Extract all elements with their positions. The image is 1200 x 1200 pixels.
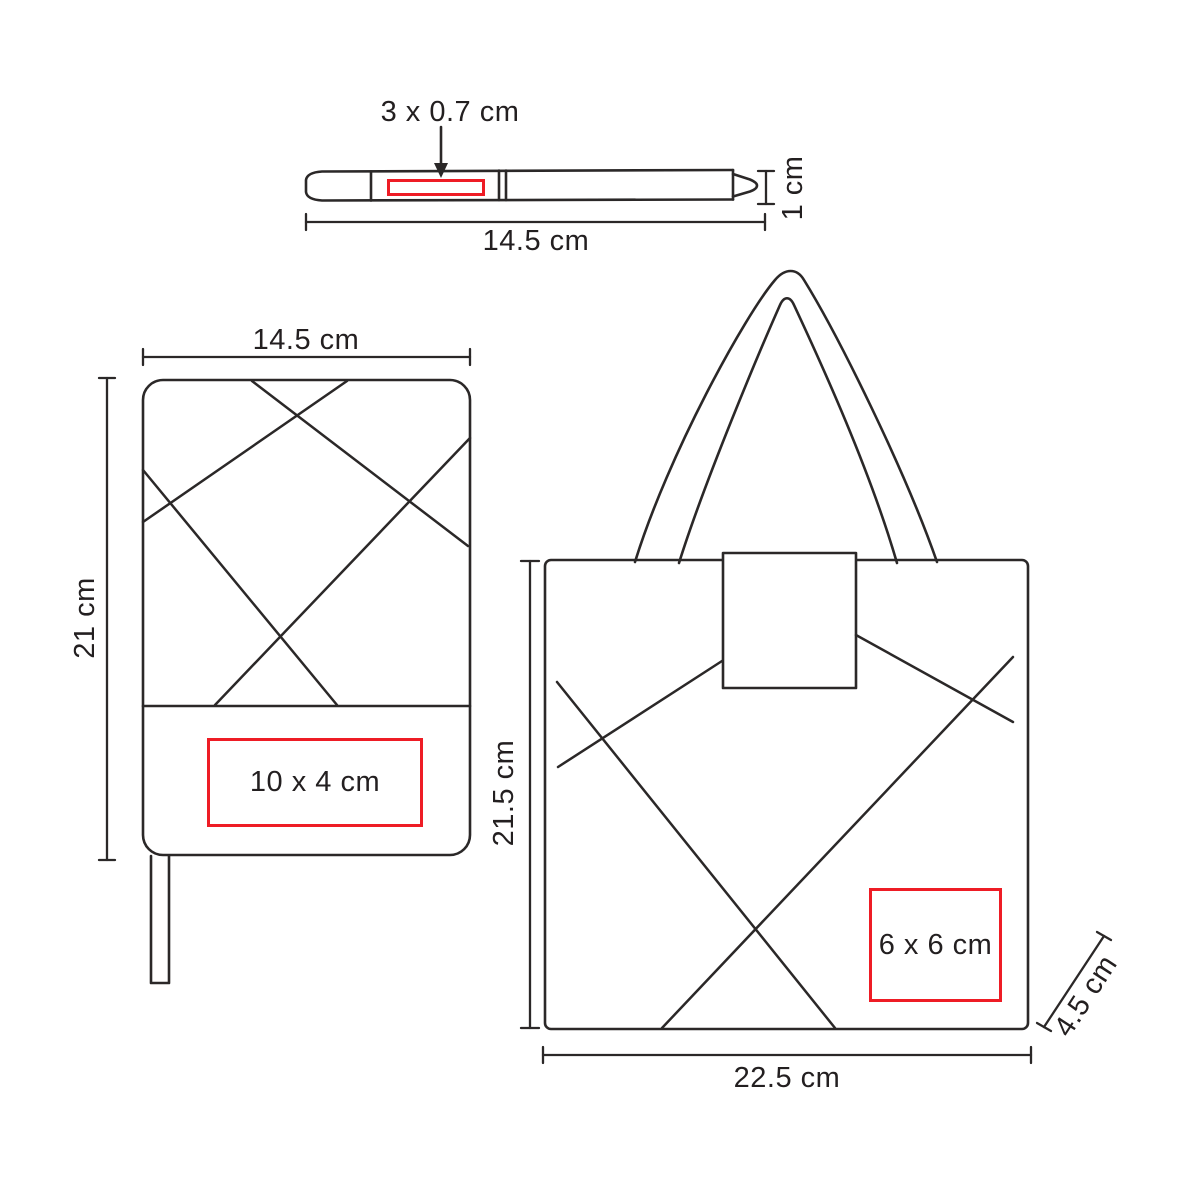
notebook-height-label: 21 cm — [70, 558, 100, 678]
notebook-print-area-label: 10 x 4 cm — [250, 766, 380, 799]
bag-print-area: 6 x 6 cm — [869, 888, 1002, 1002]
notebook-bookmark — [151, 856, 169, 983]
bag-height-dimension — [521, 561, 539, 1028]
pen-tip — [733, 174, 757, 197]
pen-diagram — [306, 127, 774, 230]
bag-print-area-label: 6 x 6 cm — [879, 929, 993, 962]
notebook-width-label: 14.5 cm — [186, 325, 426, 355]
notebook-pattern — [143, 381, 470, 705]
notebook-diagram — [99, 349, 470, 983]
bag-handle-inner — [679, 298, 897, 563]
line-art — [0, 0, 1200, 1200]
bag-height-label: 21.5 cm — [489, 733, 519, 853]
pen-height-dimension — [758, 171, 774, 204]
bag-width-dimension — [543, 1047, 1031, 1063]
bag-width-label: 22.5 cm — [667, 1063, 907, 1093]
bag-handle-outer — [635, 271, 937, 562]
pen-length-label: 14.5 cm — [416, 226, 656, 256]
pen-height-label: 1 cm — [778, 128, 808, 248]
notebook-height-dimension — [99, 378, 115, 860]
pen-print-area — [387, 179, 485, 196]
pen-print-area-label: 3 x 0.7 cm — [330, 97, 570, 127]
product-dimension-diagram: 10 x 4 cm 6 x 6 cm 3 x 0.7 cm 14.5 cm 1 … — [0, 0, 1200, 1200]
bag-diagram — [521, 271, 1111, 1063]
notebook-print-area: 10 x 4 cm — [207, 738, 423, 827]
bag-flap — [723, 553, 856, 688]
